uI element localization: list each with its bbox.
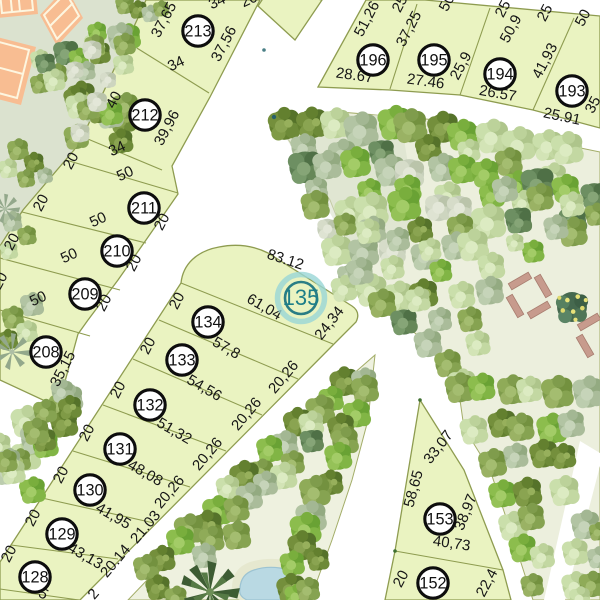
svg-text:211: 211 <box>131 200 157 218</box>
svg-text:128: 128 <box>21 569 48 587</box>
svg-text:129: 129 <box>48 526 75 544</box>
svg-text:135: 135 <box>283 285 320 310</box>
svg-text:195: 195 <box>420 52 447 70</box>
svg-text:193: 193 <box>558 83 585 101</box>
svg-text:196: 196 <box>359 52 386 70</box>
svg-text:208: 208 <box>32 344 59 362</box>
svg-text:210: 210 <box>103 243 130 261</box>
svg-text:131: 131 <box>106 441 133 459</box>
svg-text:134: 134 <box>194 314 221 332</box>
svg-text:152: 152 <box>419 575 446 593</box>
svg-text:132: 132 <box>136 397 163 415</box>
svg-text:212: 212 <box>131 107 158 125</box>
svg-text:130: 130 <box>76 482 103 500</box>
svg-text:133: 133 <box>168 352 195 370</box>
svg-text:213: 213 <box>184 23 211 41</box>
svg-text:209: 209 <box>71 286 98 304</box>
svg-text:153: 153 <box>426 511 453 529</box>
svg-text:194: 194 <box>486 66 513 84</box>
